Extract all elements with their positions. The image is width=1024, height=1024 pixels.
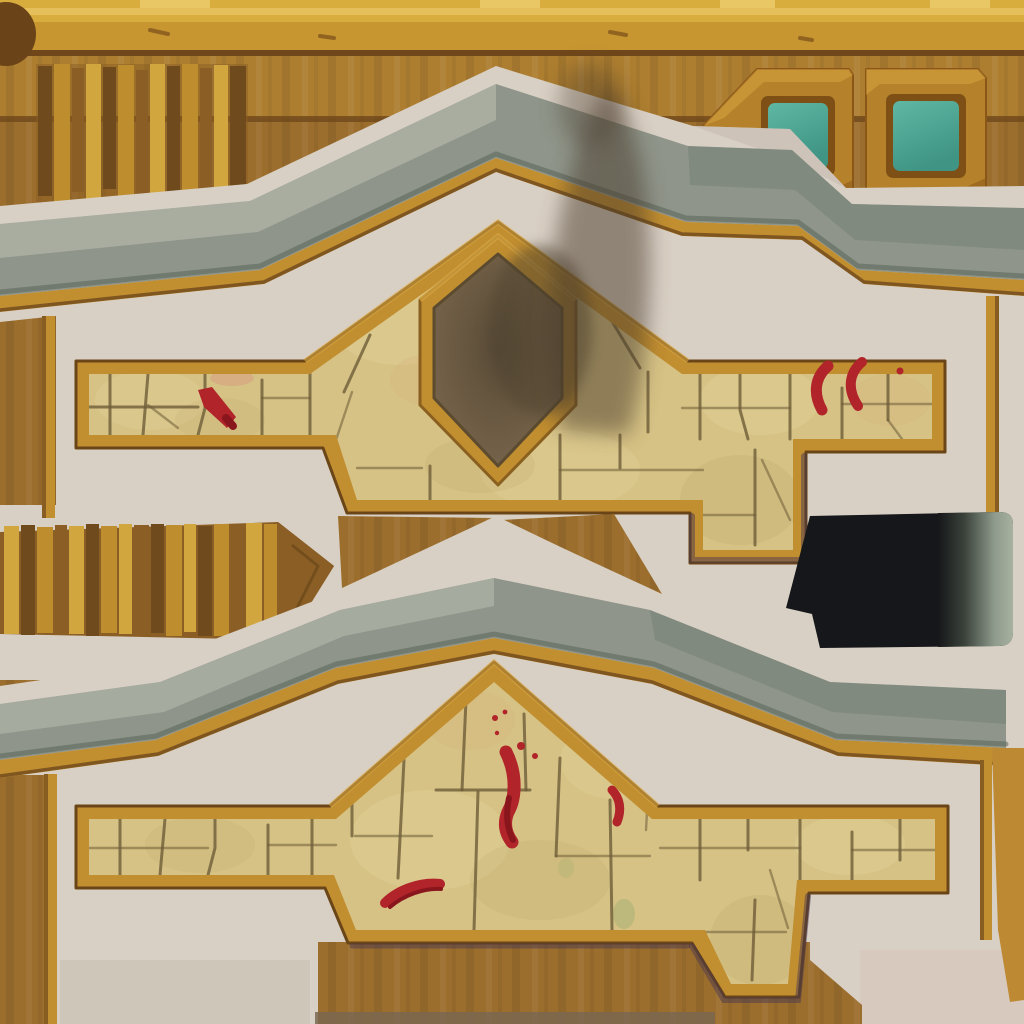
lower-ground-dark-strip	[315, 1012, 715, 1024]
blood-drop	[897, 368, 904, 375]
lower-plaster-shade-left	[60, 960, 310, 1024]
plank-panel-top-left	[36, 64, 248, 206]
blood-drop	[503, 710, 508, 715]
planks	[38, 64, 246, 204]
upper-right-edge-line	[995, 296, 999, 518]
blood-drop	[495, 731, 499, 735]
lower-left-edge-line	[44, 774, 48, 1024]
beam-tab	[720, 0, 775, 8]
void-gradient-band	[938, 512, 1013, 647]
beam-tab	[480, 0, 540, 8]
window-pane-icon	[893, 101, 959, 171]
texture-atlas	[0, 0, 1024, 1024]
beam-seam	[0, 50, 1024, 56]
lower-plaster-shade-right	[860, 950, 1024, 1024]
smoke-wisp	[558, 63, 622, 147]
upper-left-edge-line	[42, 316, 46, 518]
blood-drop	[532, 753, 538, 759]
window-block-right	[866, 69, 986, 205]
lower-right-edge-line	[980, 760, 984, 940]
texture-canvas	[0, 0, 1024, 1024]
beam-highlight	[0, 8, 1024, 15]
beam-front-face	[0, 22, 1024, 52]
beam-tab	[930, 0, 990, 8]
beam-tab	[140, 0, 210, 8]
blood-mark-dark	[226, 418, 233, 426]
blood-drop	[492, 715, 498, 721]
strip-planks	[4, 523, 277, 636]
blood-drop	[517, 742, 525, 750]
void-panel	[786, 512, 1013, 648]
